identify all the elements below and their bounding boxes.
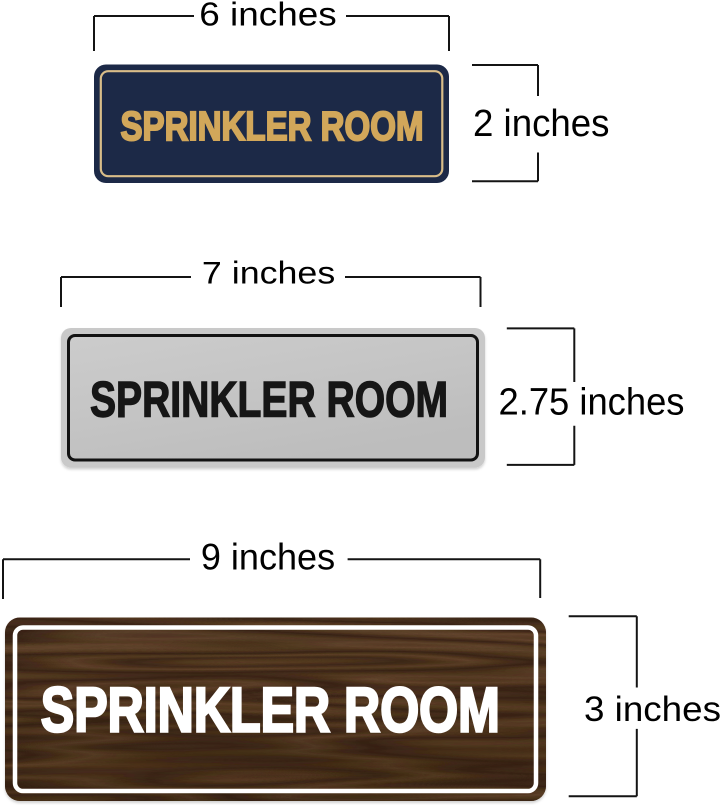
svg-text:SPRINKLER ROOM: SPRINKLER ROOM — [90, 370, 448, 427]
svg-text:SPRINKLER ROOM: SPRINKLER ROOM — [121, 103, 424, 149]
svg-text:2 inches: 2 inches — [473, 103, 610, 145]
svg-text:3 inches: 3 inches — [584, 690, 721, 729]
svg-text:7 inches: 7 inches — [202, 255, 335, 291]
svg-text:SPRINKLER ROOM: SPRINKLER ROOM — [41, 675, 500, 745]
svg-text:6 inches: 6 inches — [199, 0, 336, 33]
svg-text:9 inches: 9 inches — [201, 537, 335, 578]
svg-text:2.75 inches: 2.75 inches — [499, 381, 685, 423]
